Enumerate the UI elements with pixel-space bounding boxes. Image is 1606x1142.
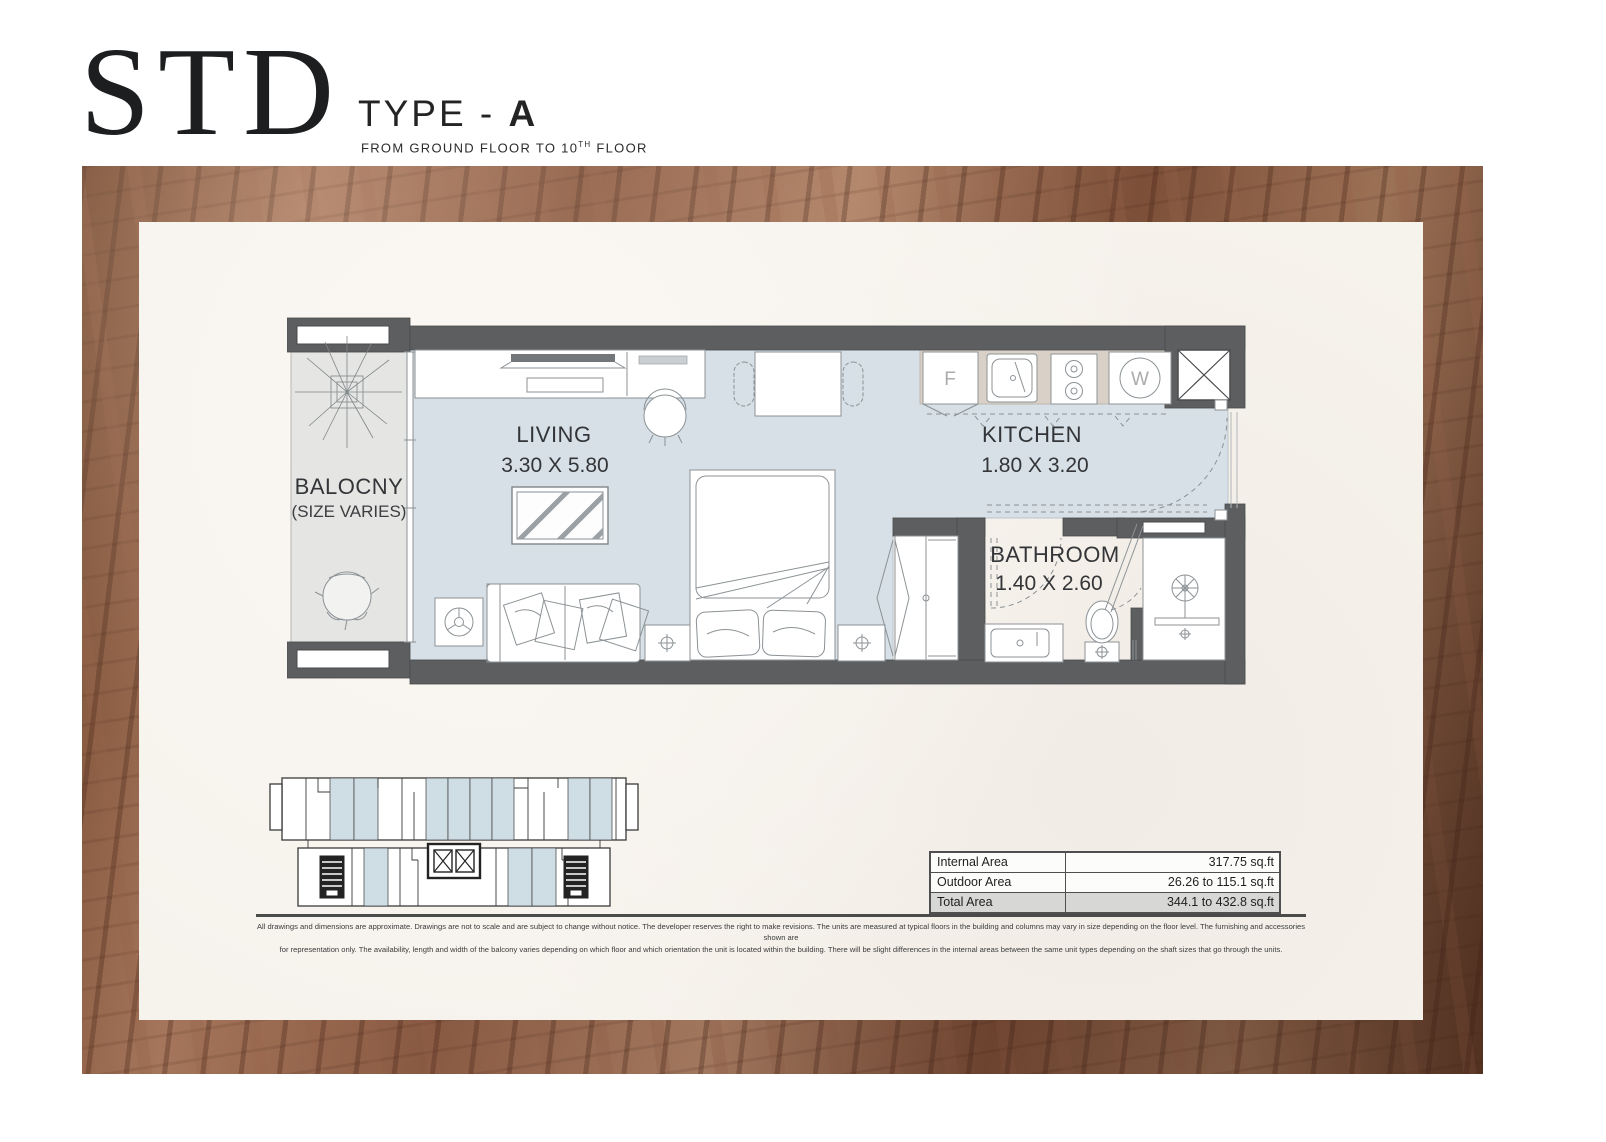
floor-range-subtitle: FROM GROUND FLOOR TO 10TH FLOOR <box>361 140 648 155</box>
area-row-value: 317.75 sq.ft <box>1066 853 1279 872</box>
elevator-icon <box>428 844 480 878</box>
svg-text:W: W <box>1131 369 1149 390</box>
unit-type-label: TYPE - A <box>358 93 536 135</box>
nightstand-right <box>838 625 885 661</box>
floorplan-panel: F W <box>139 222 1423 1020</box>
nightstand-left <box>645 625 690 661</box>
floor-range-suffix: FLOOR <box>592 140 648 155</box>
keyplan-bottom-wing <box>298 840 610 906</box>
disclaimer-line-1: All drawings and dimensions are approxim… <box>256 921 1306 944</box>
washer-icon: W <box>1109 352 1171 404</box>
svg-text:F: F <box>944 369 956 390</box>
side-table <box>435 598 483 646</box>
table-row: Internal Area 317.75 sq.ft <box>931 853 1279 872</box>
table-row: Outdoor Area 26.26 to 115.1 sq.ft <box>931 872 1279 892</box>
kitchen-dims: 1.80 X 3.20 <box>981 454 1088 477</box>
hob-icon <box>1051 354 1097 404</box>
bathroom-dims: 1.40 X 2.60 <box>995 572 1102 595</box>
area-row-label: Outdoor Area <box>931 873 1066 892</box>
page-title: STD <box>80 30 342 156</box>
living-dims: 3.30 X 5.80 <box>501 454 608 477</box>
bathroom-label: BATHROOM <box>990 542 1119 567</box>
unit-type-value: A <box>509 93 537 134</box>
tv-icon <box>511 354 615 362</box>
unit-type-prefix: TYPE - <box>358 93 509 134</box>
keyplan-top-wing <box>270 778 638 840</box>
key-plan <box>268 772 640 912</box>
sofa <box>487 584 649 662</box>
vanity-sink-icon <box>985 624 1063 662</box>
balcony-label: BALOCNY <box>295 474 404 499</box>
page: STD TYPE - A FROM GROUND FLOOR TO 10TH F… <box>0 0 1606 1142</box>
area-table: Internal Area 317.75 sq.ft Outdoor Area … <box>929 851 1281 914</box>
floor-range-text: FROM GROUND FLOOR TO 10 <box>361 140 578 155</box>
tv-console <box>415 350 705 398</box>
divider-rule <box>256 914 1306 917</box>
wood-texture-background: F W <box>82 166 1483 1074</box>
shower-room <box>1143 538 1225 660</box>
sink-icon <box>987 354 1037 402</box>
disclaimer: All drawings and dimensions are approxim… <box>256 914 1306 955</box>
stairs-icon <box>564 856 588 898</box>
table-row: Total Area 344.1 to 432.8 sq.ft <box>931 892 1279 912</box>
kitchen-label: KITCHEN <box>982 422 1082 447</box>
toilet-icon <box>1085 601 1119 662</box>
area-row-value: 344.1 to 432.8 sq.ft <box>1066 893 1279 912</box>
area-row-label: Internal Area <box>931 853 1066 872</box>
area-row-value: 26.26 to 115.1 sq.ft <box>1066 873 1279 892</box>
area-row-label: Total Area <box>931 893 1066 912</box>
floorplan-drawing: F W <box>287 312 1247 692</box>
disclaimer-line-2: for representation only. The availabilit… <box>256 944 1306 955</box>
living-label: LIVING <box>516 422 591 447</box>
bed <box>690 470 835 660</box>
stairs-icon <box>320 856 344 898</box>
floor-range-ordinal: TH <box>578 140 591 149</box>
shaft <box>1178 350 1230 400</box>
balcony-note: (SIZE VARIES) <box>292 502 407 521</box>
